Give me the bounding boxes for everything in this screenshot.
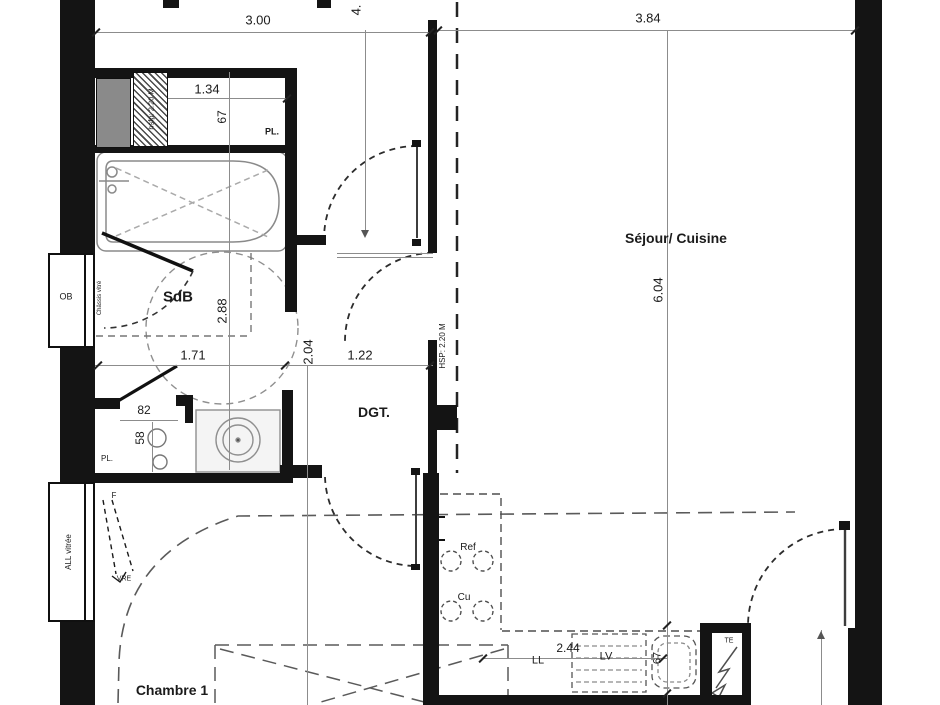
dim-entry-width: 1.22: [347, 349, 372, 362]
dimension-line: [307, 365, 308, 705]
window-glazing: [84, 484, 86, 620]
wall: [428, 20, 437, 253]
dim-sdb-height: 2.88: [216, 298, 229, 323]
entry-hall-door: [324, 146, 417, 239]
lightning-icon: [712, 647, 737, 697]
wall: [700, 623, 751, 633]
dim-wc-depth: 58: [134, 431, 146, 444]
duct-shaft: [96, 78, 131, 148]
dim-arrow-up: [817, 631, 825, 639]
ceiling-limit-dash: [118, 512, 795, 703]
floor-plan: 3.00 3.84 4. 1.34 67 PL. hsfp: 2.20 M OB…: [0, 0, 940, 705]
dimension-line: [437, 30, 855, 31]
bathtub-fixture: [97, 152, 287, 251]
dim-closet-width: 1.34: [194, 83, 219, 96]
dim-arrow-down: [361, 230, 369, 238]
dishwasher-box: [572, 634, 646, 692]
dim-dgt-width: 2.04: [302, 339, 315, 364]
hsp-note: HSP: 2.20 M: [439, 323, 447, 368]
wall: [185, 395, 193, 423]
room-dgt: DGT.: [358, 405, 390, 419]
threshold-line: [337, 253, 433, 254]
door-frame: [412, 140, 421, 147]
wall: [60, 0, 95, 253]
wall: [60, 620, 95, 705]
dimension-line: [95, 32, 430, 33]
dimension-line: [821, 630, 822, 705]
closet-wc-label: PL.: [101, 455, 113, 463]
door-frame: [411, 564, 420, 570]
wall: [437, 405, 457, 430]
dim-wc-width: 82: [137, 404, 150, 416]
wall: [293, 235, 326, 245]
fridge-label: Ref: [460, 543, 476, 553]
wall: [430, 695, 750, 705]
threshold-line: [337, 257, 433, 258]
window-ob-label: OB: [59, 293, 72, 302]
dim-top-left: 3.00: [245, 14, 270, 27]
wall: [163, 0, 179, 8]
turning-circle-dash: [96, 252, 298, 404]
room-sdb: SdB: [163, 290, 193, 305]
wall: [285, 68, 297, 312]
dim-kitchen-run: 2.44: [556, 642, 579, 654]
cooker-label: Cu: [458, 593, 471, 603]
wall: [848, 628, 882, 705]
dimension-line: [667, 30, 668, 705]
dim-closet-depth: 67: [216, 110, 228, 123]
dimension-line: [152, 422, 153, 472]
wall: [317, 0, 331, 8]
wall: [90, 473, 293, 483]
dim-kitchen-depth: 67: [653, 652, 664, 664]
washer-label: LL: [532, 656, 544, 667]
hsfp-note: hsfp: 2.20 M: [147, 88, 155, 129]
wall: [423, 473, 439, 705]
dim-sdb-width: 1.71: [180, 349, 205, 362]
kitchen-counter-dash: [437, 494, 700, 631]
window-glazing: [84, 255, 86, 346]
door-frame: [411, 468, 420, 475]
dim-sejour-height: 6.04: [652, 277, 665, 302]
wall: [855, 0, 882, 628]
room-chambre1: Chambre 1: [136, 683, 208, 697]
window-vre-label: VRE: [117, 576, 131, 583]
window-f-label: F: [112, 492, 117, 500]
door-frame: [839, 521, 850, 530]
chambre-door: [325, 474, 416, 566]
dimension-line: [365, 30, 366, 236]
entrance-door: [748, 529, 845, 626]
dim-entry-depth: 4.: [350, 5, 363, 16]
dimension-line: [95, 365, 433, 366]
dimension-line: [482, 658, 667, 659]
dim-top-right: 3.84: [635, 12, 660, 25]
wall: [282, 390, 293, 475]
window-swing-dash: [103, 500, 133, 582]
electrical-label: TE: [725, 638, 734, 645]
window-sill-label: ALL vitrée: [65, 534, 73, 570]
room-sejour: Séjour/ Cuisine: [625, 231, 727, 245]
door-frame: [412, 239, 421, 246]
wall: [95, 68, 297, 78]
dimension-line: [120, 420, 178, 421]
wall: [90, 398, 120, 409]
dishwasher-label: LV: [600, 652, 613, 663]
closet-label: PL.: [265, 128, 279, 137]
wall: [60, 348, 95, 482]
chassis-note: Châssis vitré: [97, 281, 103, 315]
dimension-line: [229, 72, 230, 470]
wc-door: [118, 366, 177, 401]
sejour-door-swing: [345, 253, 433, 341]
